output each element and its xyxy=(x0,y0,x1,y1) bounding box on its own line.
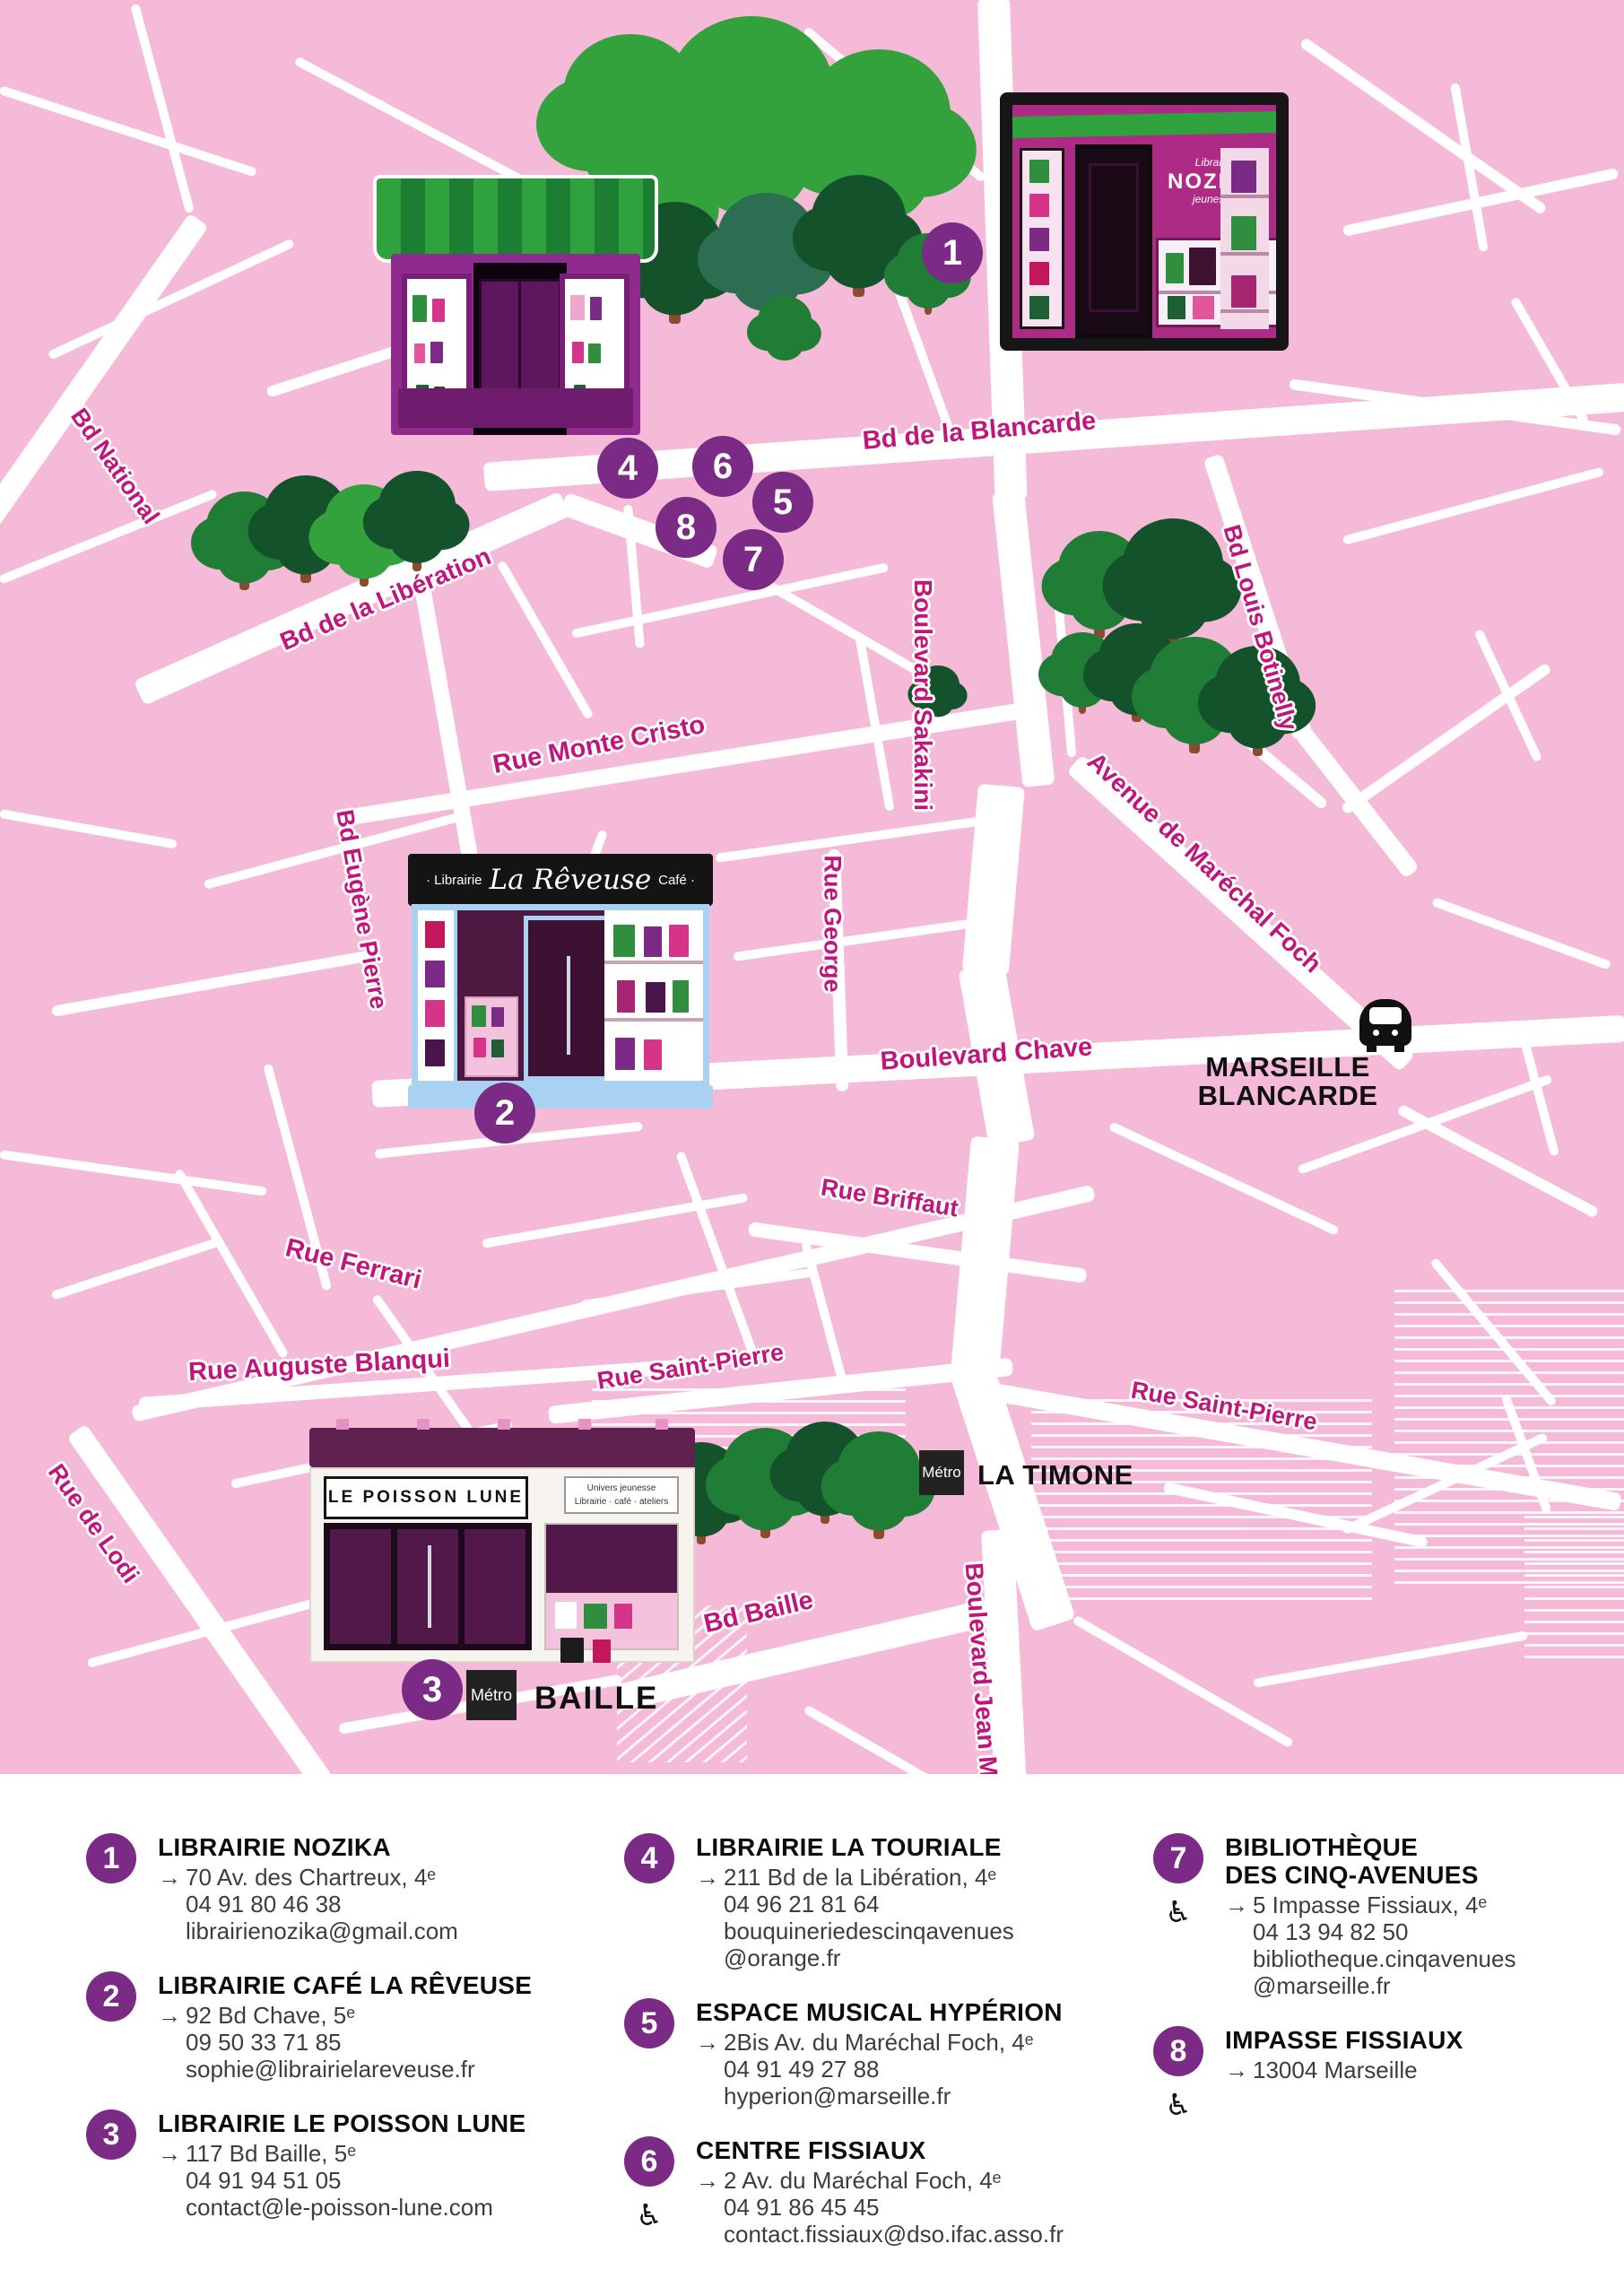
legend-item-address: →92 Bd Chave, 5ᵉ xyxy=(158,2002,532,2029)
metro-train-icon xyxy=(1359,999,1411,1046)
legend-item-detail: 04 91 80 46 38 xyxy=(158,1891,458,1918)
legend-item: 8♿IMPASSE FISSIAUX→13004 Marseille xyxy=(1153,2026,1611,2122)
road xyxy=(580,1268,812,1309)
road xyxy=(1396,1104,1599,1219)
legend-item-detail: contact.fissiaux@dso.ifac.asso.fr xyxy=(696,2221,1064,2248)
awning xyxy=(373,175,658,263)
road xyxy=(1518,1033,1559,1157)
road xyxy=(50,1236,223,1300)
tree-icon xyxy=(812,175,906,298)
road xyxy=(66,1424,333,1774)
shop-base xyxy=(408,1085,713,1109)
legend-item: 5ESPACE MUSICAL HYPÉRION→2Bis Av. du Mar… xyxy=(624,1998,1126,2109)
metro-badge: Métro xyxy=(466,1670,517,1720)
legend-item-title: DES CINQ-AVENUES xyxy=(1225,1861,1515,1889)
arrow-icon: → xyxy=(158,1864,181,1891)
legend-item-title: LIBRAIRIE CAFÉ LA RÊVEUSE xyxy=(158,1971,532,1999)
storefront-la-touriale xyxy=(386,175,646,435)
legend-item-title: ESPACE MUSICAL HYPÉRION xyxy=(696,1998,1063,2026)
road xyxy=(733,918,983,961)
road xyxy=(0,1150,267,1196)
legend-marker-badge: 4 xyxy=(624,1833,674,1883)
legend-item-address: →70 Av. des Chartreux, 4ᵉ xyxy=(158,1864,458,1891)
legend-item-detail: 04 13 94 82 50 xyxy=(1225,1918,1515,1945)
legend-item: 2LIBRAIRIE CAFÉ LA RÊVEUSE→92 Bd Chave, … xyxy=(86,1971,588,2083)
legend-item-title: LIBRAIRIE NOZIKA xyxy=(158,1833,458,1861)
road xyxy=(51,951,371,1017)
legend-item-title: CENTRE FISSIAUX xyxy=(696,2136,1064,2164)
railway-stripes xyxy=(1524,1516,1624,1659)
legend-item-detail: 09 50 33 71 85 xyxy=(158,2029,532,2056)
road xyxy=(962,784,1025,976)
map-marker-6: 6 xyxy=(692,436,753,497)
road xyxy=(1431,897,1611,970)
road xyxy=(715,816,982,863)
arrow-icon: → xyxy=(696,2029,719,2056)
station-baille: BAILLE xyxy=(534,1681,658,1717)
tree-icon xyxy=(838,1431,920,1539)
arrow-icon: → xyxy=(158,2140,181,2167)
road xyxy=(0,213,209,543)
poisson-lune-sign: LE POISSON LUNE xyxy=(324,1476,528,1519)
shop-windows xyxy=(324,1523,532,1650)
legend-item-detail: 04 91 94 51 05 xyxy=(158,2167,525,2194)
display-window xyxy=(418,910,457,1081)
arrow-icon: → xyxy=(696,2167,719,2194)
legend-marker-badge: 6 xyxy=(624,2136,674,2187)
legend-item: 1LIBRAIRIE NOZIKA→70 Av. des Chartreux, … xyxy=(86,1833,588,1944)
arrow-icon: → xyxy=(158,2002,181,2029)
road xyxy=(1253,1631,1528,1688)
road xyxy=(130,4,195,213)
legend-item: 4LIBRAIRIE LA TOURIALE→211 Bd de la Libé… xyxy=(624,1833,1126,1971)
metro-badge: Métro xyxy=(919,1450,964,1495)
display-window xyxy=(604,910,703,1081)
legend-marker-badge: 7 xyxy=(1153,1833,1203,1883)
road xyxy=(0,809,178,849)
legend-marker-badge: 1 xyxy=(86,1833,136,1883)
legend-item-detail: 04 96 21 81 64 xyxy=(696,1891,1014,1918)
legend-item-title: LIBRAIRIE LA TOURIALE xyxy=(696,1833,1014,1861)
arrow-icon: → xyxy=(696,1864,719,1891)
storefront-nozika: Librairie NOZIKA jeunesse xyxy=(1000,92,1289,351)
map-marker-5: 5 xyxy=(752,472,813,533)
street-label: Rue Briffaut xyxy=(819,1174,960,1223)
road xyxy=(0,489,218,585)
legend-item-title: LIBRAIRIE LE POISSON LUNE xyxy=(158,2109,525,2137)
legend-item-address: →2Bis Av. du Maréchal Foch, 4ᵉ xyxy=(696,2029,1063,2056)
legend-item-title: BIBLIOTHÈQUE xyxy=(1225,1833,1515,1861)
legend-item: 6♿CENTRE FISSIAUX→2 Av. du Maréchal Foch… xyxy=(624,2136,1126,2248)
poisson-lune-subsign: Univers jeunesse Librairie · café · atel… xyxy=(564,1476,679,1514)
legend: 1LIBRAIRIE NOZIKA→70 Av. des Chartreux, … xyxy=(0,1774,1624,2296)
road xyxy=(992,490,1055,787)
road xyxy=(0,85,257,177)
arrow-icon: → xyxy=(1225,2057,1248,2083)
legend-item-detail: bibliotheque.cinqavenues xyxy=(1225,1945,1515,1972)
awning xyxy=(309,1428,695,1467)
station-name-line: BLANCARDE xyxy=(1182,1082,1394,1110)
road xyxy=(1299,37,1548,215)
legend-marker-badge: 3 xyxy=(86,2109,136,2160)
legend-item-detail: librairienozika@gmail.com xyxy=(158,1918,458,1944)
legend-item-detail: bouquineriedescinqavenues xyxy=(696,1918,1014,1944)
wheelchair-accessible-icon: ♿ xyxy=(1165,2087,1192,2122)
map-marker-7: 7 xyxy=(723,529,784,590)
arrow-icon: → xyxy=(1225,1892,1248,1918)
map-marker-1: 1 xyxy=(922,222,983,283)
road xyxy=(855,633,895,812)
map-marker-2: 2 xyxy=(474,1083,535,1144)
road xyxy=(1108,1121,1340,1235)
road xyxy=(1341,662,1552,814)
storefront-la-reveuse: · Librairie La Rêveuse Café · xyxy=(408,854,713,1109)
shelf-column xyxy=(1220,148,1269,329)
street-label: Bd Baille xyxy=(701,1586,816,1639)
legend-item-address: →13004 Marseille xyxy=(1225,2057,1463,2083)
reveuse-sign: · Librairie La Rêveuse Café · xyxy=(408,854,713,906)
station-marseille-blancarde: MARSEILLE BLANCARDE xyxy=(1182,1053,1394,1110)
legend-item-address: →5 Impasse Fissiaux, 4ᵉ xyxy=(1225,1892,1515,1918)
legend-item-address: →2 Av. du Maréchal Foch, 4ᵉ xyxy=(696,2167,1064,2194)
shop-facade: LE POISSON LUNE Univers jeunesse Librair… xyxy=(309,1467,695,1663)
legend-item-detail: 04 91 49 27 88 xyxy=(696,2056,1063,2083)
legend-item-detail: contact@le-poisson-lune.com xyxy=(158,2194,525,2221)
station-la-timone: LA TIMONE xyxy=(977,1459,1133,1492)
storefront-le-poisson-lune: LE POISSON LUNE Univers jeunesse Librair… xyxy=(309,1428,695,1663)
tree-icon xyxy=(758,296,812,366)
shop-door xyxy=(1075,144,1152,338)
street-label: Boulevard Sakakini xyxy=(908,579,937,811)
metro-badge-label: Métro xyxy=(471,1686,512,1705)
legend-item-detail: sophie@librairielareveuse.fr xyxy=(158,2056,532,2083)
legend-item-address: →211 Bd de la Libération, 4ᵉ xyxy=(696,1864,1014,1891)
legend-item-detail: hyperion@marseille.fr xyxy=(696,2083,1063,2109)
legend-item-title: IMPASSE FISSIAUX xyxy=(1225,2026,1463,2054)
tree-icon xyxy=(378,471,456,571)
awning xyxy=(1012,111,1276,138)
map-marker-8: 8 xyxy=(656,497,716,558)
sign-text: Café · xyxy=(658,873,695,888)
road xyxy=(497,561,595,720)
road xyxy=(1342,467,1604,545)
street-label: Bd National xyxy=(65,404,164,530)
legend-marker-badge: 8 xyxy=(1153,2026,1203,2076)
road xyxy=(803,1705,963,1774)
legend-item: 3LIBRAIRIE LE POISSON LUNE→117 Bd Baille… xyxy=(86,2109,588,2221)
station-name-line: MARSEILLE xyxy=(1182,1053,1394,1082)
metro-badge-label: Métro xyxy=(922,1464,960,1482)
sign-text: Librairie · café · ateliers xyxy=(566,1495,677,1509)
sign-text: La Rêveuse xyxy=(489,864,651,896)
legend-item: 7♿BIBLIOTHÈQUEDES CINQ-AVENUES→5 Impasse… xyxy=(1153,1833,1611,1999)
road xyxy=(675,1151,757,1356)
illustrated-map: Librairie NOZIKA jeunesse xyxy=(0,0,1624,1774)
legend-item-address: →117 Bd Baille, 5ᵉ xyxy=(158,2140,525,2167)
map-marker-3: 3 xyxy=(402,1659,463,1720)
shop-base xyxy=(398,388,633,428)
shop-facade xyxy=(412,904,709,1087)
display-window xyxy=(544,1523,679,1650)
legend-item-detail: 04 91 86 45 45 xyxy=(696,2194,1064,2221)
window-poster xyxy=(465,996,518,1077)
map-marker-4: 4 xyxy=(597,438,658,499)
sign-text: Univers jeunesse xyxy=(566,1482,677,1495)
legend-marker-badge: 5 xyxy=(624,1998,674,2048)
road xyxy=(174,1169,290,1360)
legend-item-detail: @marseille.fr xyxy=(1225,1972,1515,1999)
display-window xyxy=(1020,148,1064,329)
legend-marker-badge: 2 xyxy=(86,1971,136,2022)
wheelchair-accessible-icon: ♿ xyxy=(636,2197,663,2232)
wheelchair-accessible-icon: ♿ xyxy=(1165,1894,1192,1929)
legend-item-detail: @orange.fr xyxy=(696,1944,1014,1971)
street-label: Rue Ferrari xyxy=(282,1233,424,1295)
street-label: Rue George xyxy=(819,855,847,992)
sign-text: · Librairie xyxy=(426,873,482,888)
shop-door xyxy=(524,916,610,1081)
